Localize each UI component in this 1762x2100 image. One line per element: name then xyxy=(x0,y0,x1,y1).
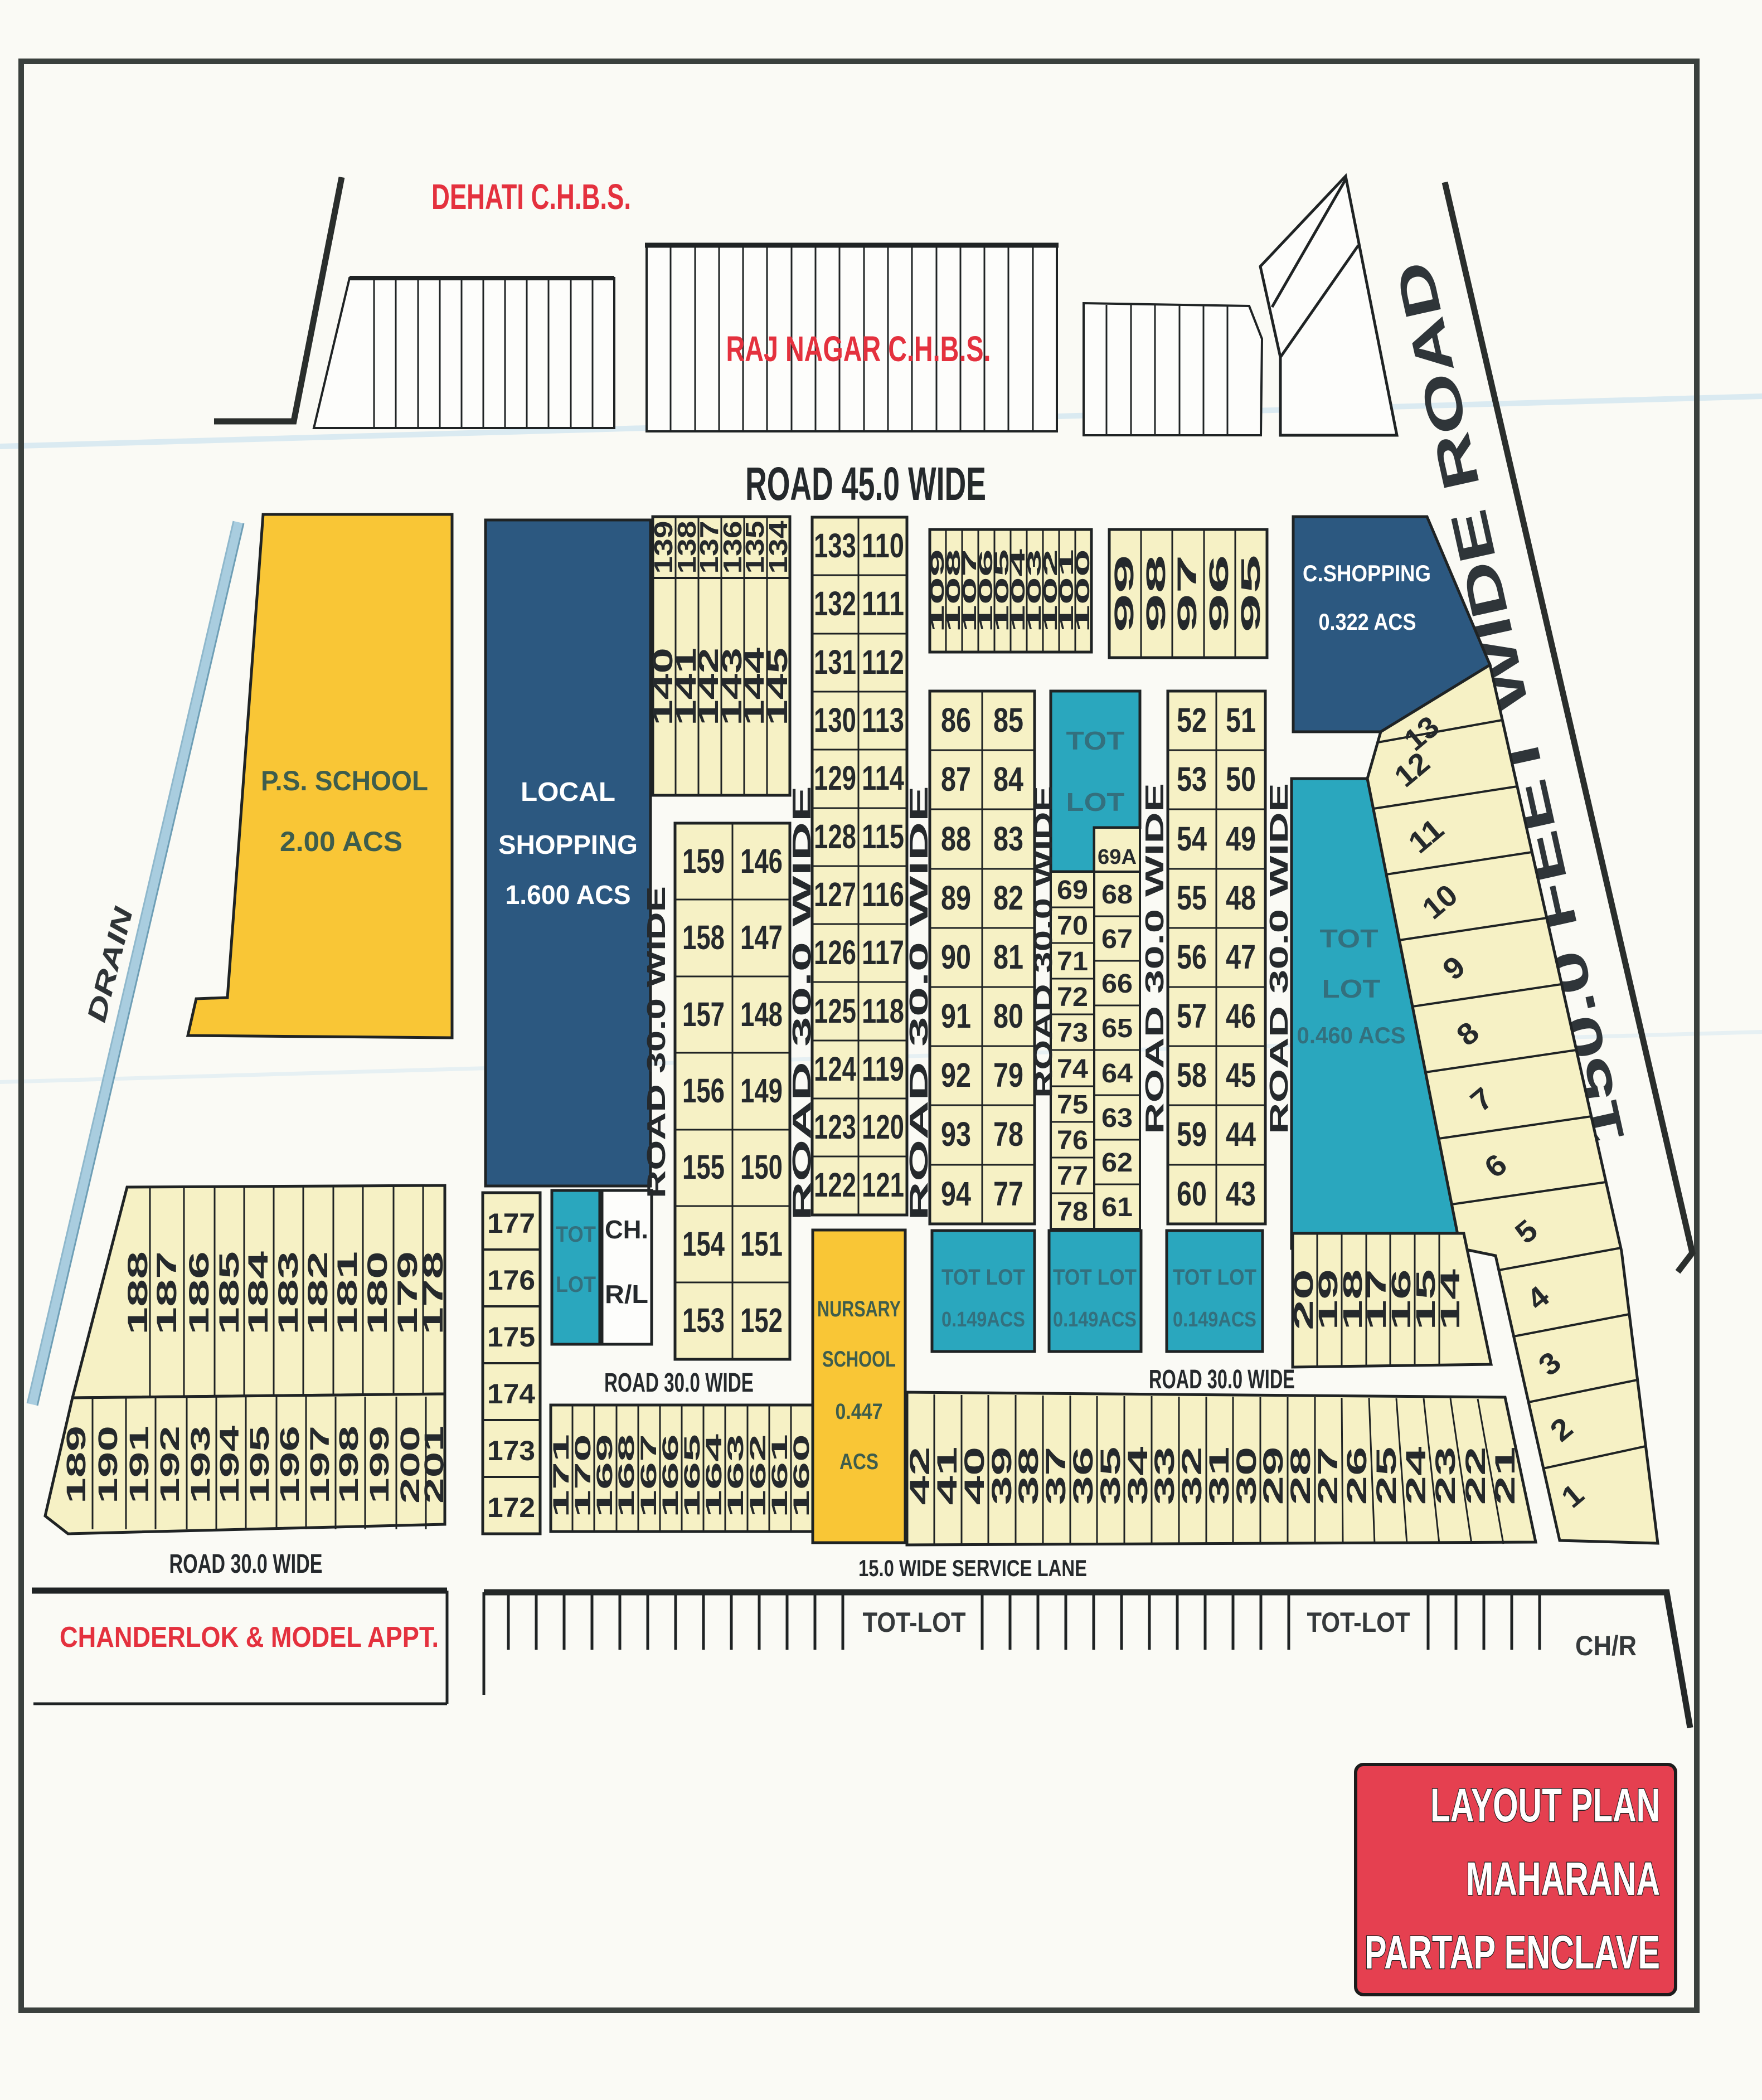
svg-text:110: 110 xyxy=(862,527,904,565)
svg-text:201: 201 xyxy=(420,1426,449,1504)
svg-text:CHANDERLOK & MODEL APPT.: CHANDERLOK & MODEL APPT. xyxy=(60,1621,439,1654)
svg-text:ROAD 45.0 WIDE: ROAD 45.0 WIDE xyxy=(745,458,986,510)
svg-text:148: 148 xyxy=(740,995,783,1033)
svg-text:133: 133 xyxy=(814,527,856,565)
svg-text:59: 59 xyxy=(1177,1115,1207,1153)
svg-text:TOT: TOT xyxy=(1066,726,1125,755)
svg-text:79: 79 xyxy=(993,1056,1023,1094)
svg-text:LOT: LOT xyxy=(1066,787,1125,816)
svg-text:74: 74 xyxy=(1057,1054,1088,1084)
svg-text:72: 72 xyxy=(1057,983,1088,1012)
svg-text:ROAD 30.0 WIDE: ROAD 30.0 WIDE xyxy=(787,786,816,1221)
svg-text:131: 131 xyxy=(814,643,856,681)
svg-text:32: 32 xyxy=(1176,1447,1207,1505)
svg-text:100: 100 xyxy=(1072,549,1094,633)
svg-text:90: 90 xyxy=(941,938,971,976)
svg-text:50: 50 xyxy=(1226,760,1256,798)
svg-text:70: 70 xyxy=(1057,911,1088,941)
svg-text:54: 54 xyxy=(1177,820,1207,858)
svg-text:132: 132 xyxy=(814,585,856,623)
svg-text:33: 33 xyxy=(1149,1447,1180,1505)
svg-text:2.00 ACS: 2.00 ACS xyxy=(280,826,402,857)
svg-text:C.SHOPPING: C.SHOPPING xyxy=(1303,560,1431,586)
svg-text:134: 134 xyxy=(764,521,793,574)
svg-text:0.149ACS: 0.149ACS xyxy=(1173,1308,1256,1331)
svg-text:129: 129 xyxy=(814,759,856,797)
svg-text:ROAD 30.0 WIDE: ROAD 30.0 WIDE xyxy=(604,1368,754,1398)
svg-text:120: 120 xyxy=(862,1108,904,1146)
svg-text:SHOPPING: SHOPPING xyxy=(498,830,638,860)
svg-text:ROAD 30.0 WIDE: ROAD 30.0 WIDE xyxy=(1140,783,1169,1134)
svg-text:197: 197 xyxy=(305,1426,335,1504)
svg-text:118: 118 xyxy=(862,992,904,1030)
svg-text:TOT-LOT: TOT-LOT xyxy=(863,1607,966,1638)
svg-text:48: 48 xyxy=(1226,879,1256,917)
svg-text:156: 156 xyxy=(682,1072,725,1110)
svg-text:DEHATI C.H.B.S.: DEHATI C.H.B.S. xyxy=(431,177,631,217)
svg-text:113: 113 xyxy=(862,701,904,739)
svg-text:196: 196 xyxy=(275,1426,305,1504)
svg-text:95: 95 xyxy=(1236,555,1266,633)
svg-text:159: 159 xyxy=(682,842,725,880)
svg-text:123: 123 xyxy=(814,1108,856,1146)
svg-text:15.0 WIDE SERVICE LANE: 15.0 WIDE SERVICE LANE xyxy=(858,1555,1087,1581)
svg-text:0.149ACS: 0.149ACS xyxy=(941,1308,1025,1331)
svg-text:TOT LOT: TOT LOT xyxy=(1173,1265,1256,1290)
svg-text:23: 23 xyxy=(1430,1447,1461,1505)
svg-text:69A: 69A xyxy=(1098,845,1137,869)
svg-text:198: 198 xyxy=(334,1426,364,1504)
svg-text:167: 167 xyxy=(637,1434,661,1518)
svg-text:182: 182 xyxy=(302,1251,333,1335)
svg-text:191: 191 xyxy=(125,1426,154,1504)
svg-text:158: 158 xyxy=(682,918,725,956)
svg-text:81: 81 xyxy=(993,938,1023,976)
svg-text:161: 161 xyxy=(768,1434,792,1518)
svg-text:155: 155 xyxy=(682,1148,725,1186)
svg-text:46: 46 xyxy=(1226,997,1256,1035)
svg-text:82: 82 xyxy=(993,879,1023,917)
svg-text:87: 87 xyxy=(941,760,971,798)
svg-text:38: 38 xyxy=(1013,1447,1044,1505)
svg-text:NURSARY: NURSARY xyxy=(817,1297,901,1321)
svg-text:130: 130 xyxy=(814,701,856,739)
svg-text:178: 178 xyxy=(418,1251,449,1335)
svg-text:LOCAL: LOCAL xyxy=(521,777,615,807)
svg-text:193: 193 xyxy=(186,1426,216,1504)
svg-text:ROAD 30.0 WIDE: ROAD 30.0 WIDE xyxy=(1028,786,1057,1098)
svg-text:TOT: TOT xyxy=(556,1222,596,1247)
svg-text:147: 147 xyxy=(740,918,783,956)
svg-text:98: 98 xyxy=(1142,555,1171,633)
svg-text:128: 128 xyxy=(814,818,856,855)
svg-text:169: 169 xyxy=(593,1434,617,1518)
svg-text:80: 80 xyxy=(993,997,1023,1035)
svg-text:170: 170 xyxy=(571,1434,595,1518)
svg-text:56: 56 xyxy=(1177,938,1207,976)
svg-text:163: 163 xyxy=(724,1434,748,1518)
svg-text:77: 77 xyxy=(993,1175,1023,1213)
svg-text:124: 124 xyxy=(814,1050,856,1088)
svg-text:145: 145 xyxy=(762,648,793,726)
svg-text:ACS: ACS xyxy=(839,1450,878,1474)
svg-text:41: 41 xyxy=(931,1447,963,1505)
svg-text:69: 69 xyxy=(1057,876,1088,905)
svg-text:CH.: CH. xyxy=(605,1215,648,1244)
svg-text:ROAD 30.0 WIDE: ROAD 30.0 WIDE xyxy=(1264,783,1293,1134)
svg-text:0.460 ACS: 0.460 ACS xyxy=(1297,1022,1406,1048)
svg-text:LOT: LOT xyxy=(556,1272,596,1297)
svg-text:192: 192 xyxy=(156,1426,185,1504)
svg-text:36: 36 xyxy=(1067,1447,1099,1505)
svg-text:153: 153 xyxy=(682,1301,725,1339)
svg-text:24: 24 xyxy=(1400,1446,1431,1505)
svg-text:44: 44 xyxy=(1226,1115,1256,1153)
svg-text:121: 121 xyxy=(862,1166,904,1204)
svg-text:171: 171 xyxy=(549,1434,574,1518)
svg-text:187: 187 xyxy=(151,1251,182,1335)
svg-text:53: 53 xyxy=(1177,760,1207,798)
svg-text:47: 47 xyxy=(1226,938,1256,976)
svg-text:77: 77 xyxy=(1057,1161,1088,1191)
svg-text:122: 122 xyxy=(814,1166,856,1204)
svg-text:49: 49 xyxy=(1226,820,1256,858)
svg-text:57: 57 xyxy=(1177,997,1207,1035)
svg-text:ROAD 30.0 WIDE: ROAD 30.0 WIDE xyxy=(904,786,933,1221)
svg-text:PARTAP ENCLAVE: PARTAP ENCLAVE xyxy=(1365,1926,1660,1979)
svg-text:181: 181 xyxy=(332,1251,363,1335)
svg-text:27: 27 xyxy=(1312,1447,1343,1505)
svg-text:166: 166 xyxy=(658,1434,683,1518)
svg-text:96: 96 xyxy=(1205,555,1234,633)
svg-text:CH/R: CH/R xyxy=(1575,1630,1637,1661)
svg-text:83: 83 xyxy=(993,820,1023,858)
svg-text:76: 76 xyxy=(1057,1126,1088,1155)
svg-text:29: 29 xyxy=(1258,1447,1289,1505)
svg-text:28: 28 xyxy=(1285,1447,1316,1505)
svg-text:52: 52 xyxy=(1177,701,1207,739)
svg-text:126: 126 xyxy=(814,934,856,971)
svg-text:125: 125 xyxy=(814,992,856,1030)
svg-text:ROAD 30.0 WIDE: ROAD 30.0 WIDE xyxy=(169,1549,323,1579)
svg-text:173: 173 xyxy=(487,1435,535,1466)
svg-text:42: 42 xyxy=(904,1447,935,1505)
svg-text:26: 26 xyxy=(1341,1447,1372,1505)
svg-text:25: 25 xyxy=(1371,1447,1402,1505)
svg-text:37: 37 xyxy=(1040,1447,1071,1505)
svg-text:97: 97 xyxy=(1173,555,1202,633)
svg-text:14: 14 xyxy=(1436,1268,1465,1330)
svg-text:64: 64 xyxy=(1101,1059,1133,1088)
svg-text:93: 93 xyxy=(941,1115,971,1153)
svg-text:22: 22 xyxy=(1460,1447,1491,1505)
svg-text:177: 177 xyxy=(487,1208,535,1239)
svg-text:168: 168 xyxy=(614,1434,639,1518)
svg-text:0.149ACS: 0.149ACS xyxy=(1053,1308,1137,1331)
svg-text:78: 78 xyxy=(1057,1197,1088,1227)
svg-text:51: 51 xyxy=(1226,701,1256,739)
svg-text:152: 152 xyxy=(740,1301,783,1339)
svg-text:78: 78 xyxy=(993,1115,1023,1153)
svg-text:1.600 ACS: 1.600 ACS xyxy=(506,881,631,910)
svg-text:67: 67 xyxy=(1101,925,1133,954)
svg-text:157: 157 xyxy=(682,995,725,1033)
svg-text:68: 68 xyxy=(1101,880,1133,910)
svg-text:119: 119 xyxy=(862,1050,904,1088)
svg-text:180: 180 xyxy=(362,1251,393,1335)
svg-text:0.447: 0.447 xyxy=(836,1399,883,1424)
svg-text:LAYOUT PLAN: LAYOUT PLAN xyxy=(1430,1779,1660,1831)
svg-text:149: 149 xyxy=(740,1072,783,1110)
svg-text:MAHARANA: MAHARANA xyxy=(1466,1853,1660,1905)
svg-text:146: 146 xyxy=(740,842,783,880)
svg-text:TOT: TOT xyxy=(1320,924,1378,953)
svg-text:88: 88 xyxy=(941,820,971,858)
svg-text:190: 190 xyxy=(94,1426,123,1504)
svg-text:183: 183 xyxy=(273,1251,304,1335)
svg-text:172: 172 xyxy=(487,1492,535,1523)
svg-text:66: 66 xyxy=(1101,969,1133,999)
svg-text:186: 186 xyxy=(183,1251,215,1335)
svg-text:65: 65 xyxy=(1101,1014,1133,1043)
svg-text:176: 176 xyxy=(487,1265,535,1296)
svg-text:85: 85 xyxy=(993,701,1023,739)
svg-text:162: 162 xyxy=(746,1434,770,1518)
svg-text:112: 112 xyxy=(862,643,904,681)
svg-text:150: 150 xyxy=(740,1148,783,1186)
svg-text:195: 195 xyxy=(245,1426,275,1504)
svg-text:SCHOOL: SCHOOL xyxy=(822,1347,896,1372)
svg-text:114: 114 xyxy=(862,759,904,797)
svg-text:TOT LOT: TOT LOT xyxy=(941,1265,1025,1290)
svg-text:R/L: R/L xyxy=(605,1280,648,1309)
svg-text:185: 185 xyxy=(213,1251,245,1335)
svg-text:127: 127 xyxy=(814,876,856,913)
svg-text:188: 188 xyxy=(122,1251,153,1335)
svg-text:175: 175 xyxy=(487,1321,535,1353)
svg-text:75: 75 xyxy=(1057,1090,1088,1120)
svg-text:199: 199 xyxy=(365,1426,395,1504)
svg-text:194: 194 xyxy=(215,1425,245,1504)
svg-text:63: 63 xyxy=(1101,1104,1133,1133)
svg-text:116: 116 xyxy=(862,876,904,913)
svg-text:94: 94 xyxy=(941,1175,971,1213)
svg-text:35: 35 xyxy=(1095,1447,1126,1505)
svg-text:73: 73 xyxy=(1057,1018,1088,1048)
svg-text:111: 111 xyxy=(862,585,904,623)
svg-text:164: 164 xyxy=(702,1433,726,1518)
svg-text:84: 84 xyxy=(993,760,1023,798)
svg-text:RAJ NAGAR C.H.B.S.: RAJ NAGAR C.H.B.S. xyxy=(726,329,991,369)
svg-text:92: 92 xyxy=(941,1056,971,1094)
svg-text:184: 184 xyxy=(242,1251,274,1335)
svg-text:62: 62 xyxy=(1101,1148,1133,1178)
svg-text:61: 61 xyxy=(1101,1193,1133,1222)
svg-text:TOT LOT: TOT LOT xyxy=(1053,1265,1137,1290)
svg-text:60: 60 xyxy=(1177,1175,1207,1213)
svg-text:154: 154 xyxy=(682,1225,725,1263)
svg-text:ROAD 30.0 WIDE: ROAD 30.0 WIDE xyxy=(642,886,671,1198)
svg-text:151: 151 xyxy=(740,1225,783,1263)
svg-text:ROAD 30.0 WIDE: ROAD 30.0 WIDE xyxy=(1149,1365,1295,1394)
svg-text:189: 189 xyxy=(62,1426,91,1504)
svg-text:21: 21 xyxy=(1489,1447,1521,1505)
svg-text:55: 55 xyxy=(1177,879,1207,917)
svg-text:115: 115 xyxy=(862,818,904,855)
svg-text:160: 160 xyxy=(789,1434,814,1518)
svg-text:174: 174 xyxy=(487,1378,535,1409)
svg-text:165: 165 xyxy=(680,1434,705,1518)
svg-text:LOT: LOT xyxy=(1322,974,1381,1003)
svg-text:86: 86 xyxy=(941,701,971,739)
svg-text:91: 91 xyxy=(941,997,971,1035)
svg-text:89: 89 xyxy=(941,879,971,917)
svg-text:117: 117 xyxy=(862,934,904,971)
svg-text:58: 58 xyxy=(1177,1056,1207,1094)
svg-text:71: 71 xyxy=(1057,947,1088,976)
svg-text:0.322 ACS: 0.322 ACS xyxy=(1319,609,1416,635)
svg-text:45: 45 xyxy=(1226,1056,1256,1094)
svg-text:31: 31 xyxy=(1203,1447,1235,1505)
svg-text:43: 43 xyxy=(1226,1175,1256,1213)
svg-text:TOT-LOT: TOT-LOT xyxy=(1307,1607,1410,1638)
svg-text:P.S. SCHOOL: P.S. SCHOOL xyxy=(261,765,428,796)
svg-text:99: 99 xyxy=(1110,555,1139,633)
svg-text:40: 40 xyxy=(959,1447,990,1505)
